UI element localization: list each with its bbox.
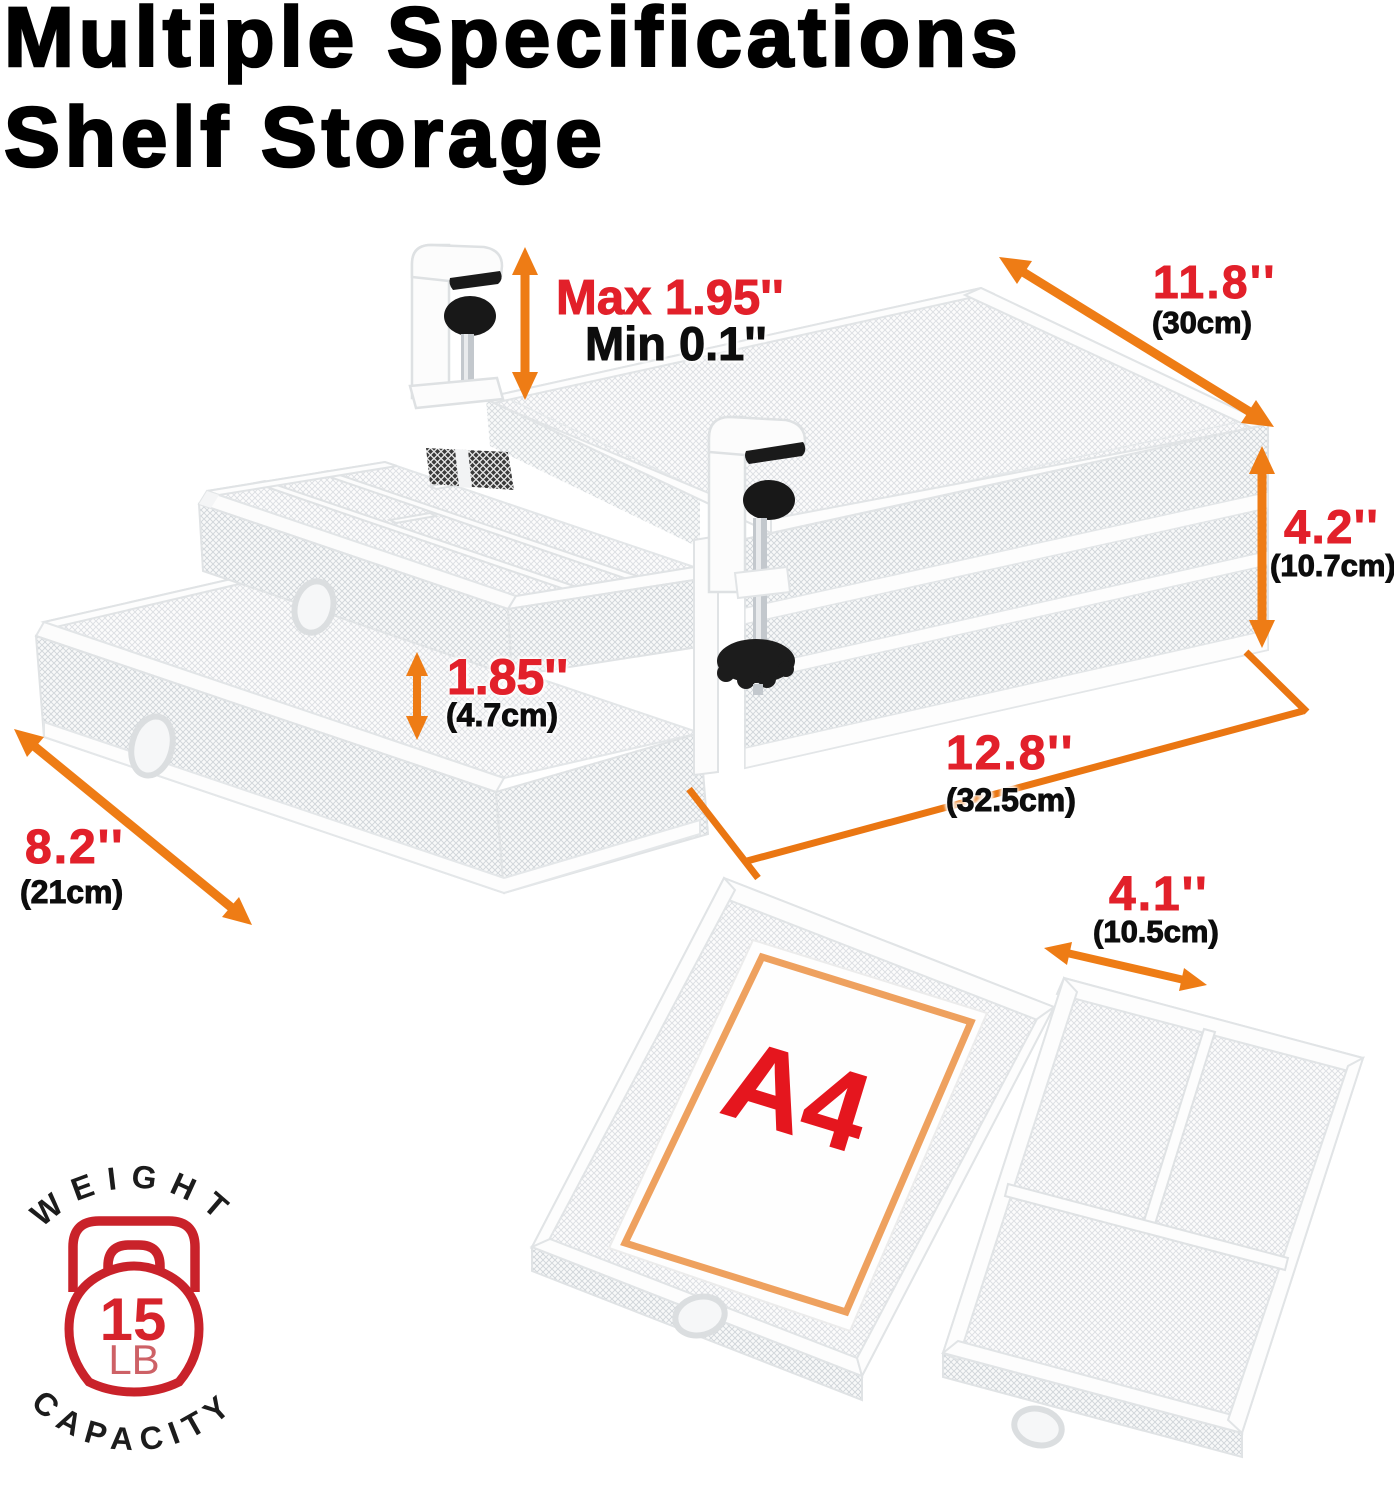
svg-text:LB: LB	[108, 1336, 159, 1383]
